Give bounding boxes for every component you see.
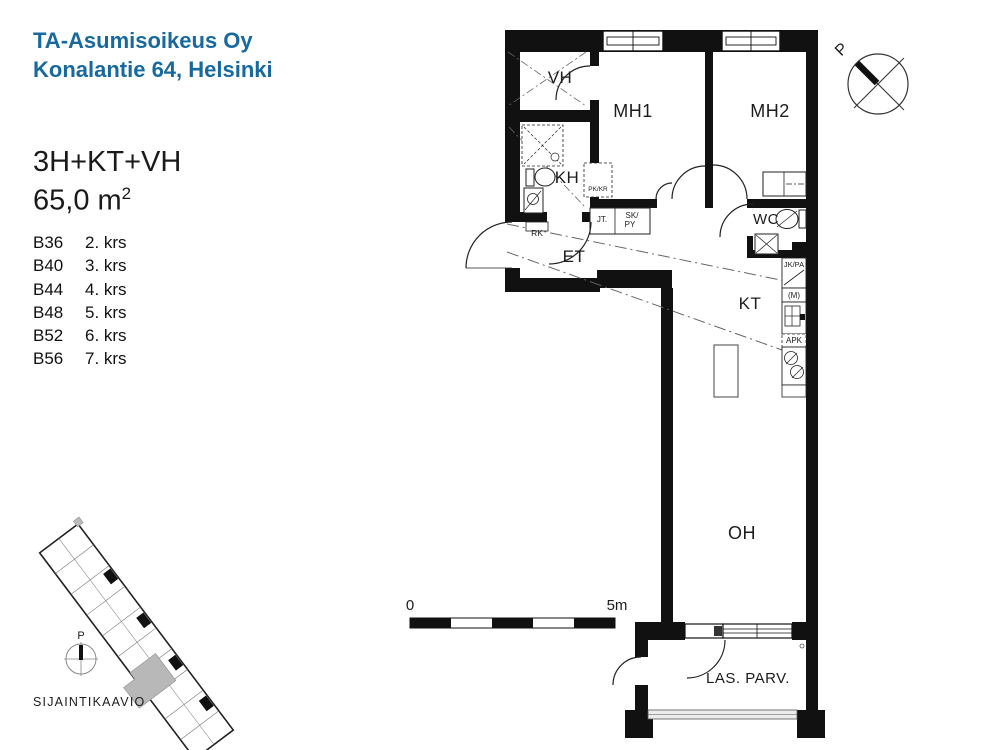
sink-basin: [785, 352, 798, 365]
floorplan-sheet: TA-Asumisoikeus Oy Konalantie 64, Helsin…: [0, 0, 1000, 750]
counter-end: [782, 385, 806, 397]
wall: [590, 48, 599, 66]
wall: [590, 199, 657, 208]
entry-door-swing: [466, 222, 512, 268]
floorplan-drawing: VH MH1 MH2 KH ET WC KT OH LAS. PARV. PK/…: [0, 0, 1000, 750]
room-label-kt: KT: [739, 294, 762, 313]
label-sk: SK/: [626, 211, 640, 220]
scale-five: 5m: [607, 597, 628, 614]
mh1-door-swing: [672, 166, 705, 199]
scale-segment: [410, 618, 451, 628]
room-label-wc: WC: [753, 211, 779, 228]
balcony-post: [797, 710, 825, 738]
label-rk: RK: [531, 228, 543, 238]
north-label: P: [832, 40, 852, 60]
sink-basin: [791, 366, 804, 379]
mh2-door-swing: [713, 165, 747, 199]
scale-zero: 0: [406, 597, 414, 614]
room-label-vh: VH: [548, 68, 573, 87]
balcony-door-leaf: [714, 626, 722, 636]
wall: [597, 270, 672, 288]
wall: [747, 199, 806, 208]
label-apk: APK: [786, 336, 803, 345]
sink-basin: [528, 194, 539, 205]
wall: [505, 110, 590, 122]
label-jt: JT.: [597, 215, 607, 224]
mh1-halfleaf-swing: [656, 183, 672, 199]
wc-door-swing: [720, 204, 753, 237]
label-pkkr: PK/KR: [588, 186, 608, 193]
wall: [635, 640, 648, 657]
scale-segment: [574, 618, 615, 628]
wall: [705, 48, 713, 199]
marker-dot: [800, 644, 804, 648]
wall: [582, 212, 590, 222]
wall: [806, 30, 818, 622]
scale-bar: 0 5m: [406, 597, 628, 628]
label-jkpa: JK/PA: [784, 260, 804, 269]
siteplan-title: SIJAINTIKAAVIO: [33, 695, 145, 709]
balcony-window: [723, 624, 792, 638]
toilet-bowl: [535, 168, 555, 186]
room-label-oh: OH: [728, 523, 756, 543]
room-label-et: ET: [563, 247, 586, 266]
room-label-balcony: LAS. PARV.: [706, 670, 790, 687]
kitchen-island: [714, 345, 738, 397]
wall: [792, 242, 806, 252]
site-building: [25, 517, 240, 750]
scale-segment: [492, 618, 533, 628]
north-compass: P: [832, 40, 908, 114]
label-m: (M): [788, 291, 800, 300]
site-plan: P SIJAINTIKAAVIO: [25, 517, 240, 750]
windows: [603, 31, 797, 719]
wall: [661, 288, 673, 622]
label-py: PY: [625, 220, 636, 229]
siteplan-north-label: P: [77, 630, 84, 642]
wall: [806, 640, 818, 712]
room-label-mh1: MH1: [613, 101, 653, 121]
building-outline: [40, 524, 234, 750]
balcony-side-door-swing: [613, 657, 641, 685]
stove-knob: [800, 314, 805, 320]
toilet-tank: [526, 169, 534, 186]
building-end-tab: [73, 517, 83, 527]
toilet-tank: [799, 210, 806, 228]
wall: [792, 622, 818, 640]
floor-drain: [551, 153, 559, 161]
wall: [635, 622, 685, 640]
wall: [635, 685, 648, 712]
wall: [705, 199, 713, 208]
room-label-mh2: MH2: [750, 101, 790, 121]
north-needle-icon: [857, 63, 877, 83]
room-label-kh: KH: [555, 168, 580, 187]
